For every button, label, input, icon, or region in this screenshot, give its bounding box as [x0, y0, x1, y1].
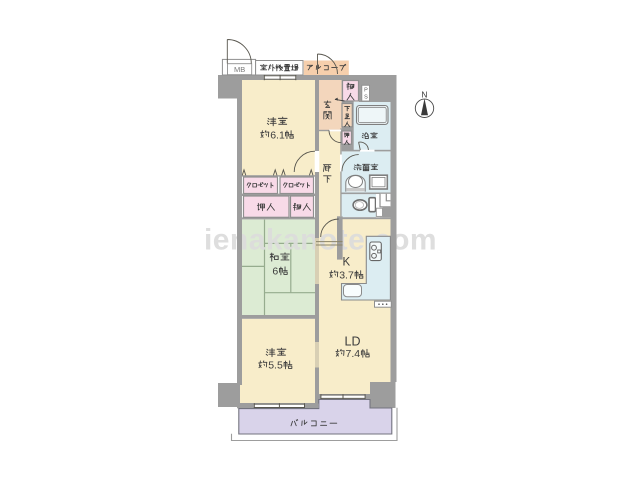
- svg-text:3.7: 3.7: [339, 269, 354, 281]
- svg-text:6: 6: [272, 266, 278, 278]
- svg-text:LD: LD: [345, 335, 361, 349]
- svg-text:7.4: 7.4: [345, 348, 360, 360]
- svg-text:K: K: [342, 256, 350, 268]
- svg-text:6.1: 6.1: [270, 129, 285, 141]
- svg-text:MB: MB: [234, 65, 245, 74]
- svg-text:P: P: [364, 88, 368, 94]
- svg-text:S: S: [364, 95, 368, 101]
- svg-text:5.5: 5.5: [268, 360, 283, 372]
- svg-text:N: N: [421, 90, 427, 100]
